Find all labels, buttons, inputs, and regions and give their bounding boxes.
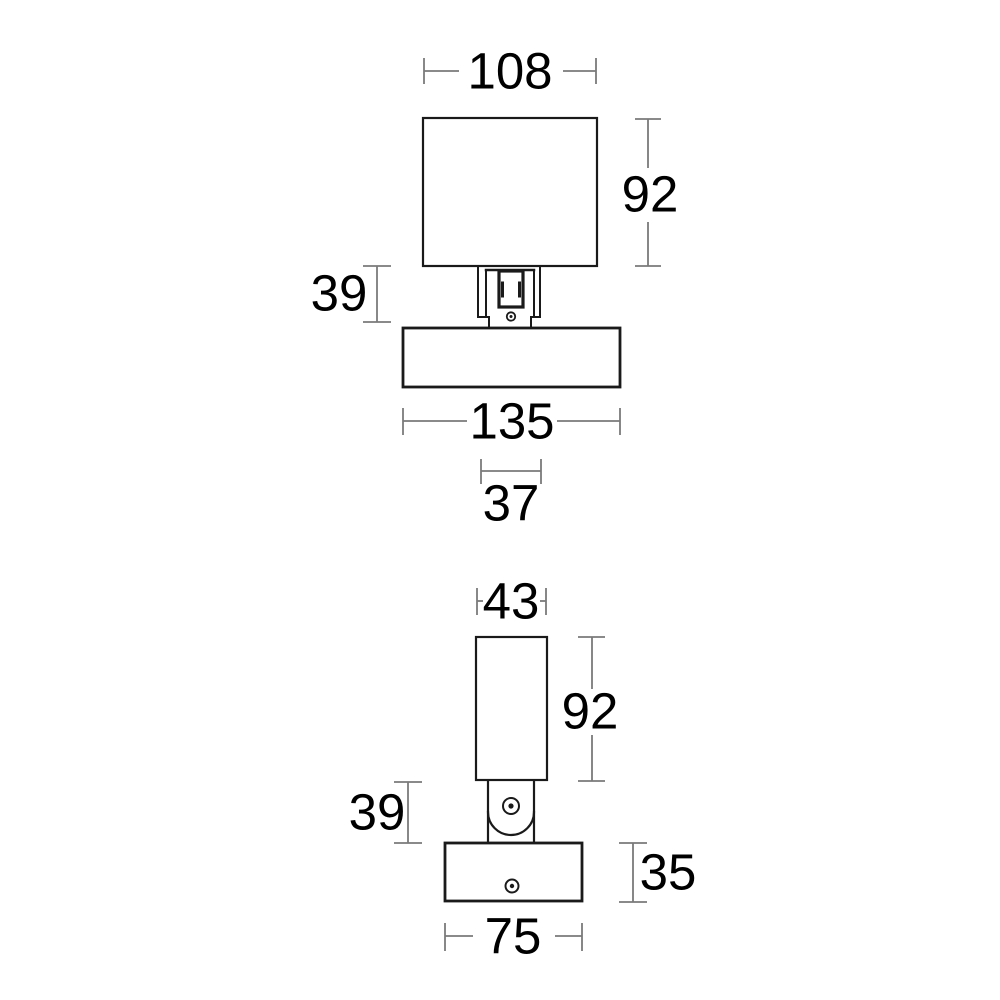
front-view: 108 92 39 135 37 xyxy=(311,43,679,532)
dim-shade-width-label: 108 xyxy=(467,43,552,100)
side-pivot-joint xyxy=(488,780,534,843)
dim-mount-height-label: 39 xyxy=(311,265,368,322)
dim-shade-height-label: 92 xyxy=(622,166,679,223)
technical-drawing: 108 92 39 135 37 xyxy=(0,0,1000,1000)
drawing-canvas: 108 92 39 135 37 xyxy=(0,0,1000,1000)
dim-bracket-width-label: 37 xyxy=(483,475,540,532)
base-screw-dot xyxy=(510,884,514,888)
side-view: 43 92 39 35 75 xyxy=(349,573,697,965)
dim-joint-height-label: 39 xyxy=(349,784,406,841)
front-shade-outline xyxy=(423,118,597,266)
dim-body-height-label: 92 xyxy=(562,683,619,740)
side-body-outline xyxy=(476,637,547,780)
dim-base-width-label: 135 xyxy=(469,393,554,450)
front-pivot-bracket xyxy=(478,266,540,329)
front-wall-plate-outline xyxy=(403,328,620,387)
dim-body-width-label: 43 xyxy=(483,573,540,630)
dim-base-height-label: 35 xyxy=(640,844,697,901)
side-wall-plate-outline xyxy=(445,843,582,901)
bracket-screw-dot xyxy=(510,315,513,318)
pivot-screw-dot xyxy=(508,803,513,808)
dim-side-base-width-label: 75 xyxy=(485,908,542,965)
pivot-arc xyxy=(488,812,534,835)
